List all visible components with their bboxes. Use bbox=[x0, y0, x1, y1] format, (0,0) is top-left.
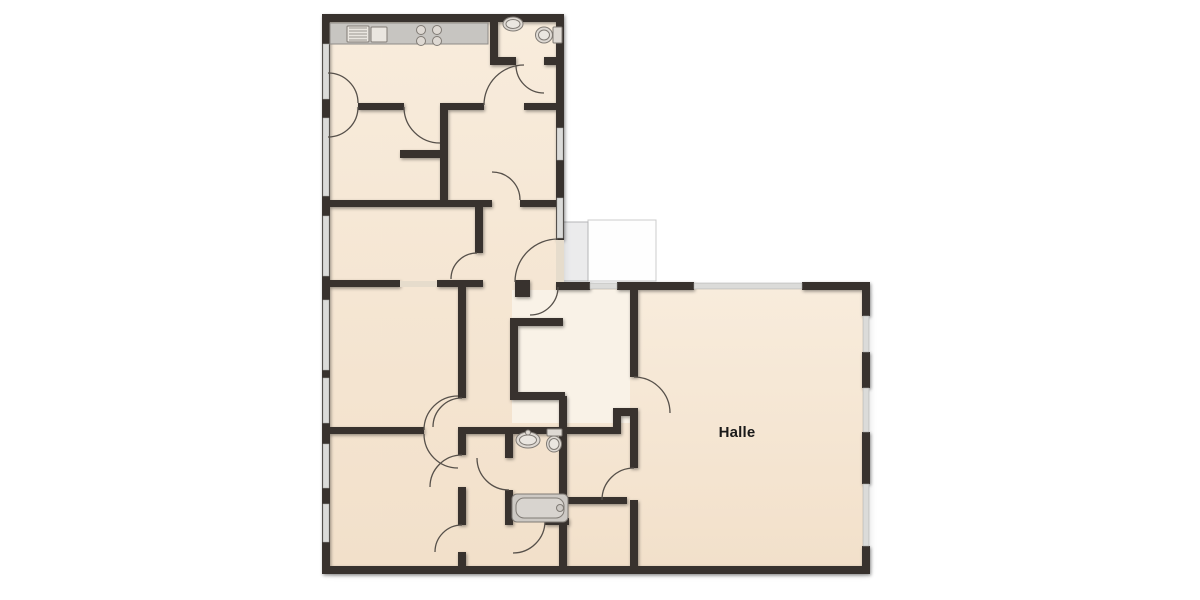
wall-segment bbox=[862, 282, 870, 316]
wall-segment bbox=[630, 282, 638, 377]
wall-segment bbox=[630, 413, 638, 468]
door-threshold bbox=[556, 240, 564, 282]
door-threshold bbox=[400, 281, 437, 287]
floors-layer bbox=[326, 18, 866, 570]
wall-segment bbox=[330, 427, 424, 434]
wall-segment bbox=[458, 487, 466, 525]
window-segment bbox=[863, 388, 869, 432]
wc-toilet-bowl-inner bbox=[539, 30, 550, 40]
wall-segment bbox=[458, 434, 466, 455]
wall-segment bbox=[510, 318, 518, 396]
outside-layer bbox=[562, 220, 656, 281]
kitchen-sink-basin bbox=[371, 27, 387, 42]
floor-floor_light bbox=[512, 290, 630, 423]
wall-segment bbox=[505, 518, 513, 525]
window-segment bbox=[323, 216, 329, 276]
wall-segment bbox=[862, 432, 870, 484]
wall-segment bbox=[862, 352, 870, 388]
wall-segment bbox=[322, 14, 564, 22]
window-segment bbox=[323, 378, 329, 423]
window-segment bbox=[863, 484, 869, 546]
wall-segment bbox=[505, 434, 513, 458]
wall-segment bbox=[475, 207, 483, 253]
window-segment bbox=[863, 316, 869, 352]
window-segment bbox=[323, 444, 329, 488]
wall-segment bbox=[330, 280, 400, 287]
wall-segment bbox=[400, 150, 448, 158]
bathtub-faucet bbox=[557, 505, 564, 512]
wall-segment bbox=[567, 497, 627, 504]
window-segment bbox=[323, 504, 329, 542]
window-segment bbox=[323, 44, 329, 99]
bath-toilet-tank bbox=[547, 429, 562, 436]
floor-plan-svg bbox=[0, 0, 1200, 600]
wall-segment bbox=[448, 200, 492, 207]
wall-segment bbox=[544, 57, 564, 65]
window-segment bbox=[323, 118, 329, 196]
window-segment bbox=[323, 300, 329, 370]
stove-burner bbox=[417, 26, 426, 35]
wall-segment bbox=[802, 282, 870, 290]
floor-plan-page: Halle bbox=[0, 0, 1200, 600]
stove-burner bbox=[417, 37, 426, 46]
wall-segment bbox=[458, 287, 466, 398]
wall-segment bbox=[524, 103, 564, 110]
bath-toilet-bowl-inner bbox=[549, 439, 559, 450]
bath-sink-tap bbox=[526, 430, 531, 435]
wall-segment bbox=[358, 103, 404, 110]
entrance-porch bbox=[562, 222, 588, 281]
stove-burner bbox=[433, 26, 442, 35]
wall-segment bbox=[458, 552, 466, 566]
wc-toilet-tank bbox=[553, 27, 562, 43]
wall-segment bbox=[458, 427, 614, 434]
wall-segment bbox=[322, 566, 870, 574]
stove-burner bbox=[433, 37, 442, 46]
wc-sink-basin bbox=[506, 20, 520, 29]
wall-segment bbox=[330, 200, 448, 207]
wall-segment bbox=[510, 392, 565, 400]
room-label-halle: Halle bbox=[703, 424, 771, 441]
window-segment bbox=[557, 128, 563, 160]
wall-segment bbox=[862, 546, 870, 574]
bath-sink-basin bbox=[520, 435, 537, 445]
wall-segment bbox=[556, 282, 590, 290]
wall-segment bbox=[630, 500, 638, 574]
window-segment bbox=[590, 283, 617, 289]
entrance-terrace bbox=[588, 220, 656, 281]
wall-segment bbox=[437, 280, 483, 287]
wall-segment bbox=[490, 57, 516, 65]
window-segment bbox=[694, 283, 802, 289]
wall-segment bbox=[515, 280, 530, 297]
window-segment bbox=[557, 198, 563, 238]
wall-segment bbox=[440, 103, 484, 110]
wall-segment bbox=[617, 282, 694, 290]
